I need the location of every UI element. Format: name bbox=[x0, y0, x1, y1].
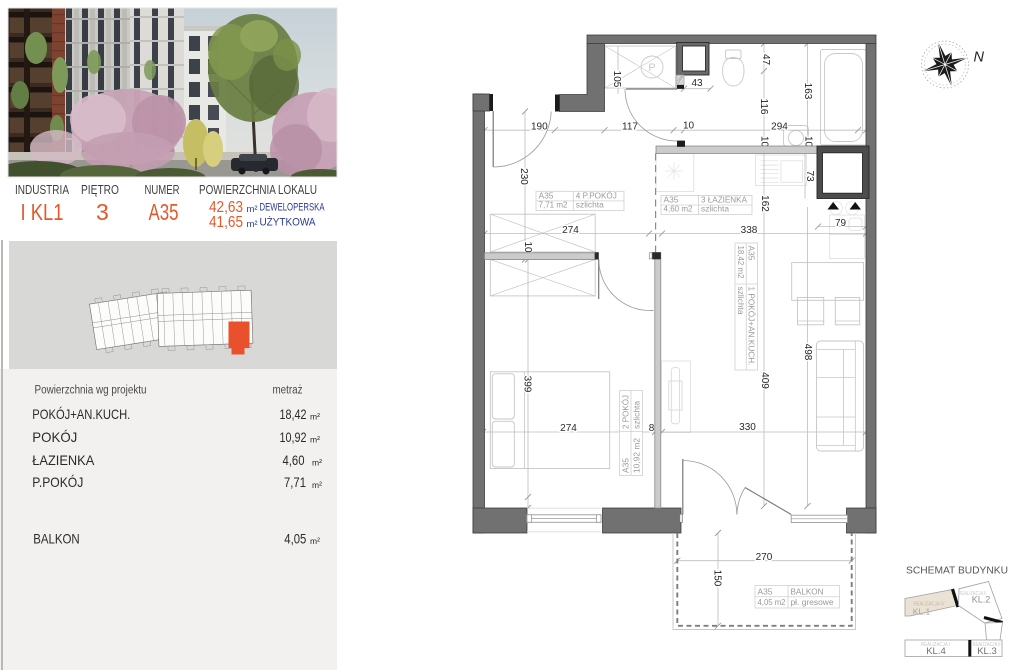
svg-text:Powierzchnia wg projektu: Powierzchnia wg projektu bbox=[35, 385, 147, 397]
svg-text:7,71: 7,71 bbox=[284, 475, 306, 490]
svg-text:105: 105 bbox=[611, 71, 622, 88]
svg-text:2 POKÓJ: 2 POKÓJ bbox=[621, 395, 631, 429]
svg-text:4,05 m2: 4,05 m2 bbox=[758, 598, 786, 607]
svg-text:399: 399 bbox=[522, 376, 533, 393]
svg-text:N: N bbox=[974, 50, 985, 66]
svg-text:UŻYTKOWA: UŻYTKOWA bbox=[260, 216, 317, 229]
svg-text:7,71 m2: 7,71 m2 bbox=[539, 201, 568, 210]
svg-text:294: 294 bbox=[771, 121, 788, 132]
svg-text:10: 10 bbox=[522, 241, 533, 253]
svg-text:330: 330 bbox=[739, 422, 756, 433]
svg-text:m²: m² bbox=[312, 457, 322, 467]
svg-text:KL.4: KL.4 bbox=[926, 646, 946, 657]
svg-text:szlichta: szlichta bbox=[576, 201, 604, 210]
svg-text:SCHEMAT BUDYNKU: SCHEMAT BUDYNKU bbox=[906, 566, 1008, 577]
svg-text:ŁAZIENKA: ŁAZIENKA bbox=[32, 453, 95, 468]
svg-text:10,92: 10,92 bbox=[280, 430, 307, 445]
svg-text:274: 274 bbox=[562, 225, 579, 236]
svg-text:1 POKÓJ+AN.KUCH.: 1 POKÓJ+AN.KUCH. bbox=[747, 287, 757, 366]
svg-text:DEWELOPERSKA: DEWELOPERSKA bbox=[260, 202, 325, 214]
svg-text:150: 150 bbox=[712, 570, 723, 587]
svg-text:m²: m² bbox=[247, 204, 258, 215]
svg-text:338: 338 bbox=[741, 225, 758, 236]
svg-text:NUMER: NUMER bbox=[145, 183, 180, 197]
svg-text:79: 79 bbox=[835, 218, 847, 229]
svg-text:10,92 m2: 10,92 m2 bbox=[633, 438, 642, 473]
svg-text:409: 409 bbox=[759, 372, 770, 389]
svg-text:szlichta: szlichta bbox=[633, 401, 642, 429]
svg-text:A35: A35 bbox=[747, 246, 756, 261]
svg-text:P: P bbox=[648, 62, 655, 74]
svg-text:43: 43 bbox=[691, 78, 703, 89]
svg-text:3: 3 bbox=[96, 199, 109, 225]
svg-text:4,05: 4,05 bbox=[284, 531, 306, 546]
svg-text:190: 190 bbox=[531, 121, 548, 132]
svg-text:162: 162 bbox=[759, 195, 770, 212]
svg-text:POWIERZCHNIA LOKALU: POWIERZCHNIA LOKALU bbox=[199, 183, 317, 197]
svg-text:m²: m² bbox=[310, 412, 320, 422]
svg-text:41,65: 41,65 bbox=[209, 214, 243, 231]
svg-text:274: 274 bbox=[560, 423, 577, 434]
svg-text:498: 498 bbox=[802, 344, 813, 361]
svg-text:szlichta: szlichta bbox=[701, 205, 729, 214]
svg-text:73: 73 bbox=[804, 170, 815, 182]
svg-text:4,60: 4,60 bbox=[283, 453, 305, 468]
svg-text:P.POKÓJ: P.POKÓJ bbox=[32, 474, 83, 490]
svg-text:POKÓJ+AN.KUCH.: POKÓJ+AN.KUCH. bbox=[32, 406, 130, 422]
svg-text:4,60 m2: 4,60 m2 bbox=[664, 205, 693, 214]
svg-text:I KL1: I KL1 bbox=[21, 199, 64, 225]
svg-text:116: 116 bbox=[758, 99, 769, 115]
svg-text:A35: A35 bbox=[622, 458, 631, 473]
svg-text:3 ŁAZIENKA: 3 ŁAZIENKA bbox=[701, 196, 748, 205]
svg-text:PIĘTRO: PIĘTRO bbox=[81, 183, 119, 197]
svg-text:10: 10 bbox=[683, 120, 695, 131]
svg-text:A35: A35 bbox=[758, 587, 773, 596]
svg-text:117: 117 bbox=[622, 121, 638, 132]
svg-text:BALKON: BALKON bbox=[33, 531, 79, 546]
svg-text:4 P.POKÓJ: 4 P.POKÓJ bbox=[576, 191, 617, 201]
svg-text:BALKON: BALKON bbox=[791, 587, 824, 596]
svg-text:163: 163 bbox=[802, 83, 813, 100]
svg-text:8: 8 bbox=[649, 423, 655, 434]
svg-text:szlichta: szlichta bbox=[736, 287, 745, 315]
svg-text:18,42 m2: 18,42 m2 bbox=[736, 246, 745, 279]
svg-text:metraż: metraż bbox=[273, 385, 303, 397]
svg-text:47: 47 bbox=[760, 54, 771, 66]
svg-text:POKÓJ: POKÓJ bbox=[32, 429, 77, 445]
svg-text:270: 270 bbox=[756, 552, 773, 563]
svg-text:KL.3: KL.3 bbox=[977, 646, 997, 657]
svg-text:m²: m² bbox=[310, 536, 320, 546]
svg-text:pł. gresowe: pł. gresowe bbox=[791, 598, 834, 607]
svg-text:A35: A35 bbox=[664, 196, 679, 205]
svg-text:A35: A35 bbox=[539, 192, 554, 201]
svg-text:18,42: 18,42 bbox=[280, 407, 307, 422]
svg-text:230: 230 bbox=[518, 168, 529, 185]
svg-text:KL.1: KL.1 bbox=[913, 607, 931, 617]
svg-text:A35: A35 bbox=[149, 199, 179, 225]
svg-text:m²: m² bbox=[247, 219, 258, 230]
svg-text:INDUSTRIA: INDUSTRIA bbox=[15, 183, 69, 197]
svg-text:KL.2: KL.2 bbox=[972, 595, 991, 605]
svg-text:m²: m² bbox=[310, 434, 320, 444]
svg-text:m²: m² bbox=[312, 480, 322, 490]
